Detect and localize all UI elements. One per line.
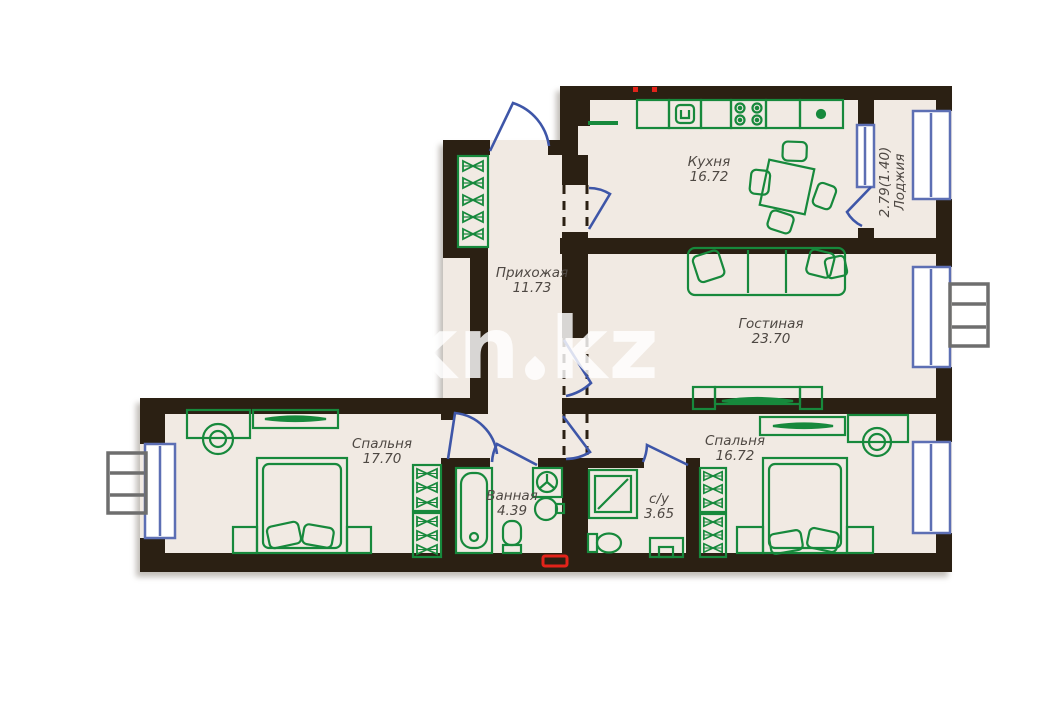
room-label-hallway: Прихожая 11.73 [496,266,568,296]
room-area: 3.65 [644,507,674,522]
room-name: Прихожая [496,266,568,281]
room-name: Кухня [688,155,731,170]
floor-plan-page: Кухня 16.72 2.79(1.40) Лоджия Прихожая 1… [0,0,1063,709]
room-name: Спальня [705,434,765,449]
room-area: 11.73 [513,281,552,296]
window-loggia [913,111,950,199]
room-area: 23.70 [752,332,791,347]
room-area: 17.70 [363,452,402,467]
window-bedroom-right [913,442,950,533]
room-area: 2.79(1.40) [878,147,893,218]
room-name: с/у [649,492,669,507]
room-name: Спальня [352,437,412,452]
watermark-left: kn [400,306,520,392]
room-label-loggia: 2.79(1.40) Лоджия [878,147,908,218]
watermark-drop-icon [521,356,549,384]
watermark-right: kz [550,306,659,392]
room-area: 16.72 [716,449,755,464]
room-label-bedroom-right: Спальня 16.72 [705,434,765,464]
room-name: Гостиная [738,317,803,332]
room-area: 4.39 [497,504,527,519]
watermark: kn kz [400,306,660,392]
bracket-right [950,284,988,346]
room-label-bathroom: Ванная 4.39 [486,489,538,519]
room-name: Лоджия [893,154,908,211]
room-label-living-room: Гостиная 23.70 [738,317,803,347]
window-loggia-partition [857,125,874,187]
room-label-wc: с/у 3.65 [644,492,674,522]
room-name: Ванная [486,489,538,504]
window-living-room [913,267,950,367]
window-bedroom-left [145,444,175,538]
room-label-kitchen: Кухня 16.72 [688,155,731,185]
room-label-bedroom-left: Спальня 17.70 [352,437,412,467]
room-area: 16.72 [690,170,729,185]
